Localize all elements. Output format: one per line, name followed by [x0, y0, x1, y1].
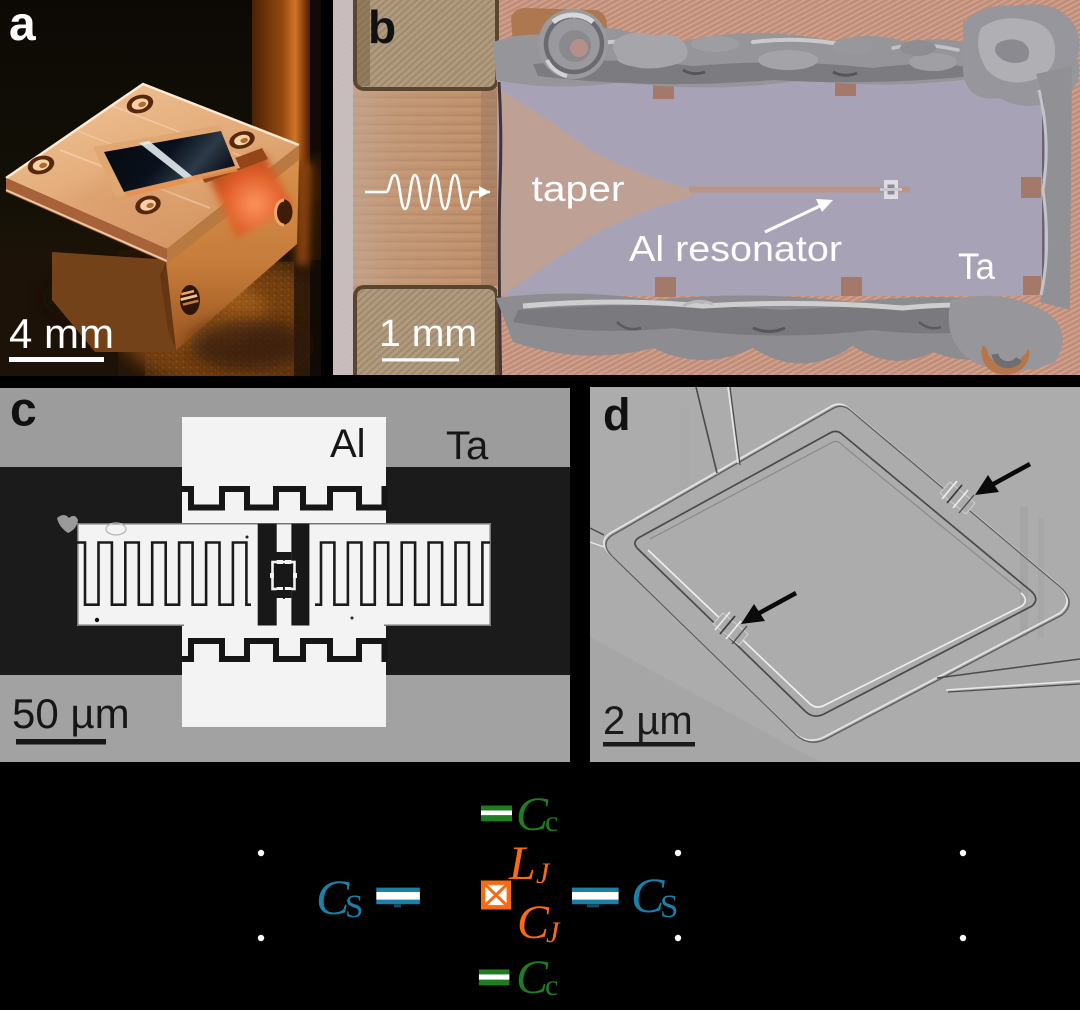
svg-text:Al: Al — [330, 422, 366, 466]
svg-text:L: L — [508, 837, 536, 890]
svg-text:Al resonator: Al resonator — [629, 228, 842, 269]
svg-text:c: c — [545, 969, 558, 1002]
svg-text:1 mm: 1 mm — [379, 313, 477, 355]
svg-text:50 µm: 50 µm — [12, 690, 130, 737]
svg-text:4 mm: 4 mm — [9, 310, 114, 357]
svg-text:2 µm: 2 µm — [603, 699, 693, 743]
svg-text:S: S — [660, 889, 678, 925]
svg-text:S: S — [345, 889, 363, 925]
svg-text:b: b — [368, 1, 396, 53]
svg-text:d: d — [603, 389, 631, 440]
svg-text:taper: taper — [532, 168, 625, 209]
svg-text:Ta: Ta — [446, 424, 489, 468]
svg-text:Ta: Ta — [958, 246, 995, 287]
svg-text:a: a — [9, 0, 36, 51]
svg-text:J: J — [536, 857, 551, 890]
svg-text:c: c — [10, 388, 37, 437]
svg-text:J: J — [546, 916, 561, 949]
svg-text:c: c — [545, 805, 558, 838]
